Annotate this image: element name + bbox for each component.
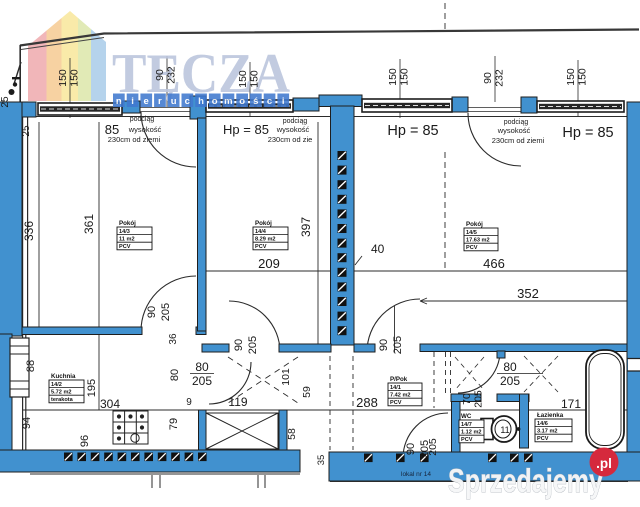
svg-text:Pokój: Pokój <box>466 221 483 228</box>
svg-text:h: h <box>198 96 204 107</box>
svg-text:u: u <box>171 96 177 107</box>
svg-text:o: o <box>212 96 218 107</box>
svg-text:90: 90 <box>378 339 390 351</box>
svg-text:c: c <box>267 96 272 107</box>
svg-text:podciąg: podciąg <box>283 118 308 125</box>
svg-text:17.63 m2: 17.63 m2 <box>466 237 490 243</box>
svg-text:79: 79 <box>168 418 180 430</box>
svg-text:195: 195 <box>86 379 98 397</box>
svg-text:150: 150 <box>387 68 399 86</box>
svg-text:150: 150 <box>565 68 577 86</box>
svg-text:230cm od zie: 230cm od zie <box>268 135 313 144</box>
svg-text:70: 70 <box>461 393 473 405</box>
svg-text:90: 90 <box>482 72 494 84</box>
svg-text:14/2: 14/2 <box>51 382 62 388</box>
svg-text:Hp = 85: Hp = 85 <box>387 123 438 139</box>
svg-text:90: 90 <box>405 443 417 455</box>
svg-text:205: 205 <box>419 440 431 458</box>
svg-text:90: 90 <box>146 306 158 318</box>
svg-text:232: 232 <box>494 69 506 87</box>
svg-text:101: 101 <box>280 368 292 386</box>
svg-text:14/4: 14/4 <box>255 229 267 235</box>
svg-text:WC: WC <box>461 413 472 420</box>
svg-text:150: 150 <box>399 68 411 86</box>
svg-text:230cm od ziemi: 230cm od ziemi <box>492 136 545 145</box>
svg-text:25: 25 <box>21 125 32 137</box>
svg-text:14/1: 14/1 <box>390 385 401 391</box>
svg-text:466: 466 <box>483 256 505 271</box>
svg-text:304: 304 <box>100 397 120 411</box>
svg-text:80: 80 <box>169 369 181 381</box>
svg-text:14/5: 14/5 <box>466 230 477 236</box>
svg-text:11: 11 <box>500 425 509 435</box>
svg-text:PCV: PCV <box>390 400 402 406</box>
svg-text:PCV: PCV <box>255 244 267 250</box>
svg-text:podciąg: podciąg <box>130 116 155 123</box>
svg-text:14/3: 14/3 <box>119 229 130 235</box>
svg-text:podciąg: podciąg <box>504 119 529 126</box>
svg-text:80: 80 <box>195 360 209 374</box>
svg-text:PCV: PCV <box>461 437 473 443</box>
svg-text:wysokość: wysokość <box>497 126 531 135</box>
svg-text:r: r <box>158 96 162 107</box>
svg-text:361: 361 <box>82 214 96 234</box>
svg-text:336: 336 <box>22 221 36 241</box>
svg-text:209: 209 <box>258 256 280 271</box>
svg-text:14/7: 14/7 <box>461 422 472 428</box>
svg-text:58: 58 <box>286 428 298 440</box>
svg-text:m: m <box>224 96 232 107</box>
svg-text:230cm od ziemi: 230cm od ziemi <box>108 135 161 144</box>
svg-text:ś: ś <box>253 96 258 107</box>
svg-text:36: 36 <box>168 333 179 345</box>
svg-text:150: 150 <box>249 70 261 88</box>
svg-text:90: 90 <box>154 69 166 81</box>
svg-text:205: 205 <box>392 336 404 354</box>
svg-text:PCV: PCV <box>119 244 131 250</box>
svg-text:119: 119 <box>228 395 247 409</box>
svg-text:80: 80 <box>503 360 517 374</box>
svg-text:59: 59 <box>301 386 313 398</box>
svg-text:88: 88 <box>25 360 37 372</box>
svg-text:7.42 m2: 7.42 m2 <box>390 392 411 398</box>
svg-text:150: 150 <box>69 69 81 87</box>
svg-text:11 m2: 11 m2 <box>119 236 135 242</box>
svg-text:96: 96 <box>79 435 91 447</box>
svg-text:14/6: 14/6 <box>537 421 548 427</box>
svg-text:Hp = 85: Hp = 85 <box>562 125 613 141</box>
svg-text:8.29 m2: 8.29 m2 <box>255 236 276 242</box>
svg-text:352: 352 <box>517 286 539 301</box>
svg-text:PCV: PCV <box>466 245 478 251</box>
svg-text:397: 397 <box>299 217 313 237</box>
svg-text:3.17 m2: 3.17 m2 <box>537 428 558 434</box>
svg-text:Kuchnia: Kuchnia <box>51 373 76 380</box>
svg-text:5.72 m2: 5.72 m2 <box>51 389 72 395</box>
svg-text:40: 40 <box>371 242 385 256</box>
svg-text:wysokość: wysokość <box>128 125 162 134</box>
svg-text:35: 35 <box>316 455 327 466</box>
svg-text:94: 94 <box>21 417 33 429</box>
svg-text:205: 205 <box>160 303 172 321</box>
svg-text:n: n <box>116 96 122 107</box>
svg-text:Łazienka: Łazienka <box>537 412 564 419</box>
svg-text:205: 205 <box>473 390 485 408</box>
svg-text:c: c <box>185 96 190 107</box>
svg-text:150: 150 <box>57 69 69 87</box>
svg-text:205: 205 <box>192 374 212 388</box>
svg-text:Sprzedajemy: Sprzedajemy <box>448 462 603 499</box>
svg-text:9: 9 <box>186 397 192 408</box>
svg-text:terakota: terakota <box>51 397 74 403</box>
svg-text:150: 150 <box>237 70 249 88</box>
svg-text:Pokój: Pokój <box>255 220 272 227</box>
svg-text:wysokość: wysokość <box>276 125 310 134</box>
svg-text:150: 150 <box>577 68 589 86</box>
svg-text:25: 25 <box>0 96 11 108</box>
svg-text:PCV: PCV <box>537 436 549 442</box>
svg-text:i: i <box>131 96 134 107</box>
svg-text:.pl: .pl <box>596 456 612 471</box>
svg-text:171: 171 <box>561 397 581 411</box>
svg-text:Hp = 85: Hp = 85 <box>223 122 269 137</box>
svg-text:205: 205 <box>247 336 259 354</box>
svg-text:lokal nr 14: lokal nr 14 <box>401 471 431 478</box>
svg-text:1.12 m2: 1.12 m2 <box>461 429 482 435</box>
svg-text:90: 90 <box>233 339 245 351</box>
svg-text:o: o <box>239 96 245 107</box>
svg-text:e: e <box>144 96 149 107</box>
svg-text:i: i <box>282 96 285 107</box>
svg-text:288: 288 <box>356 395 378 410</box>
svg-text:205: 205 <box>500 374 520 388</box>
svg-text:P/Pok: P/Pok <box>390 376 408 383</box>
svg-text:Pokój: Pokój <box>119 220 136 227</box>
svg-text:232: 232 <box>166 66 178 84</box>
